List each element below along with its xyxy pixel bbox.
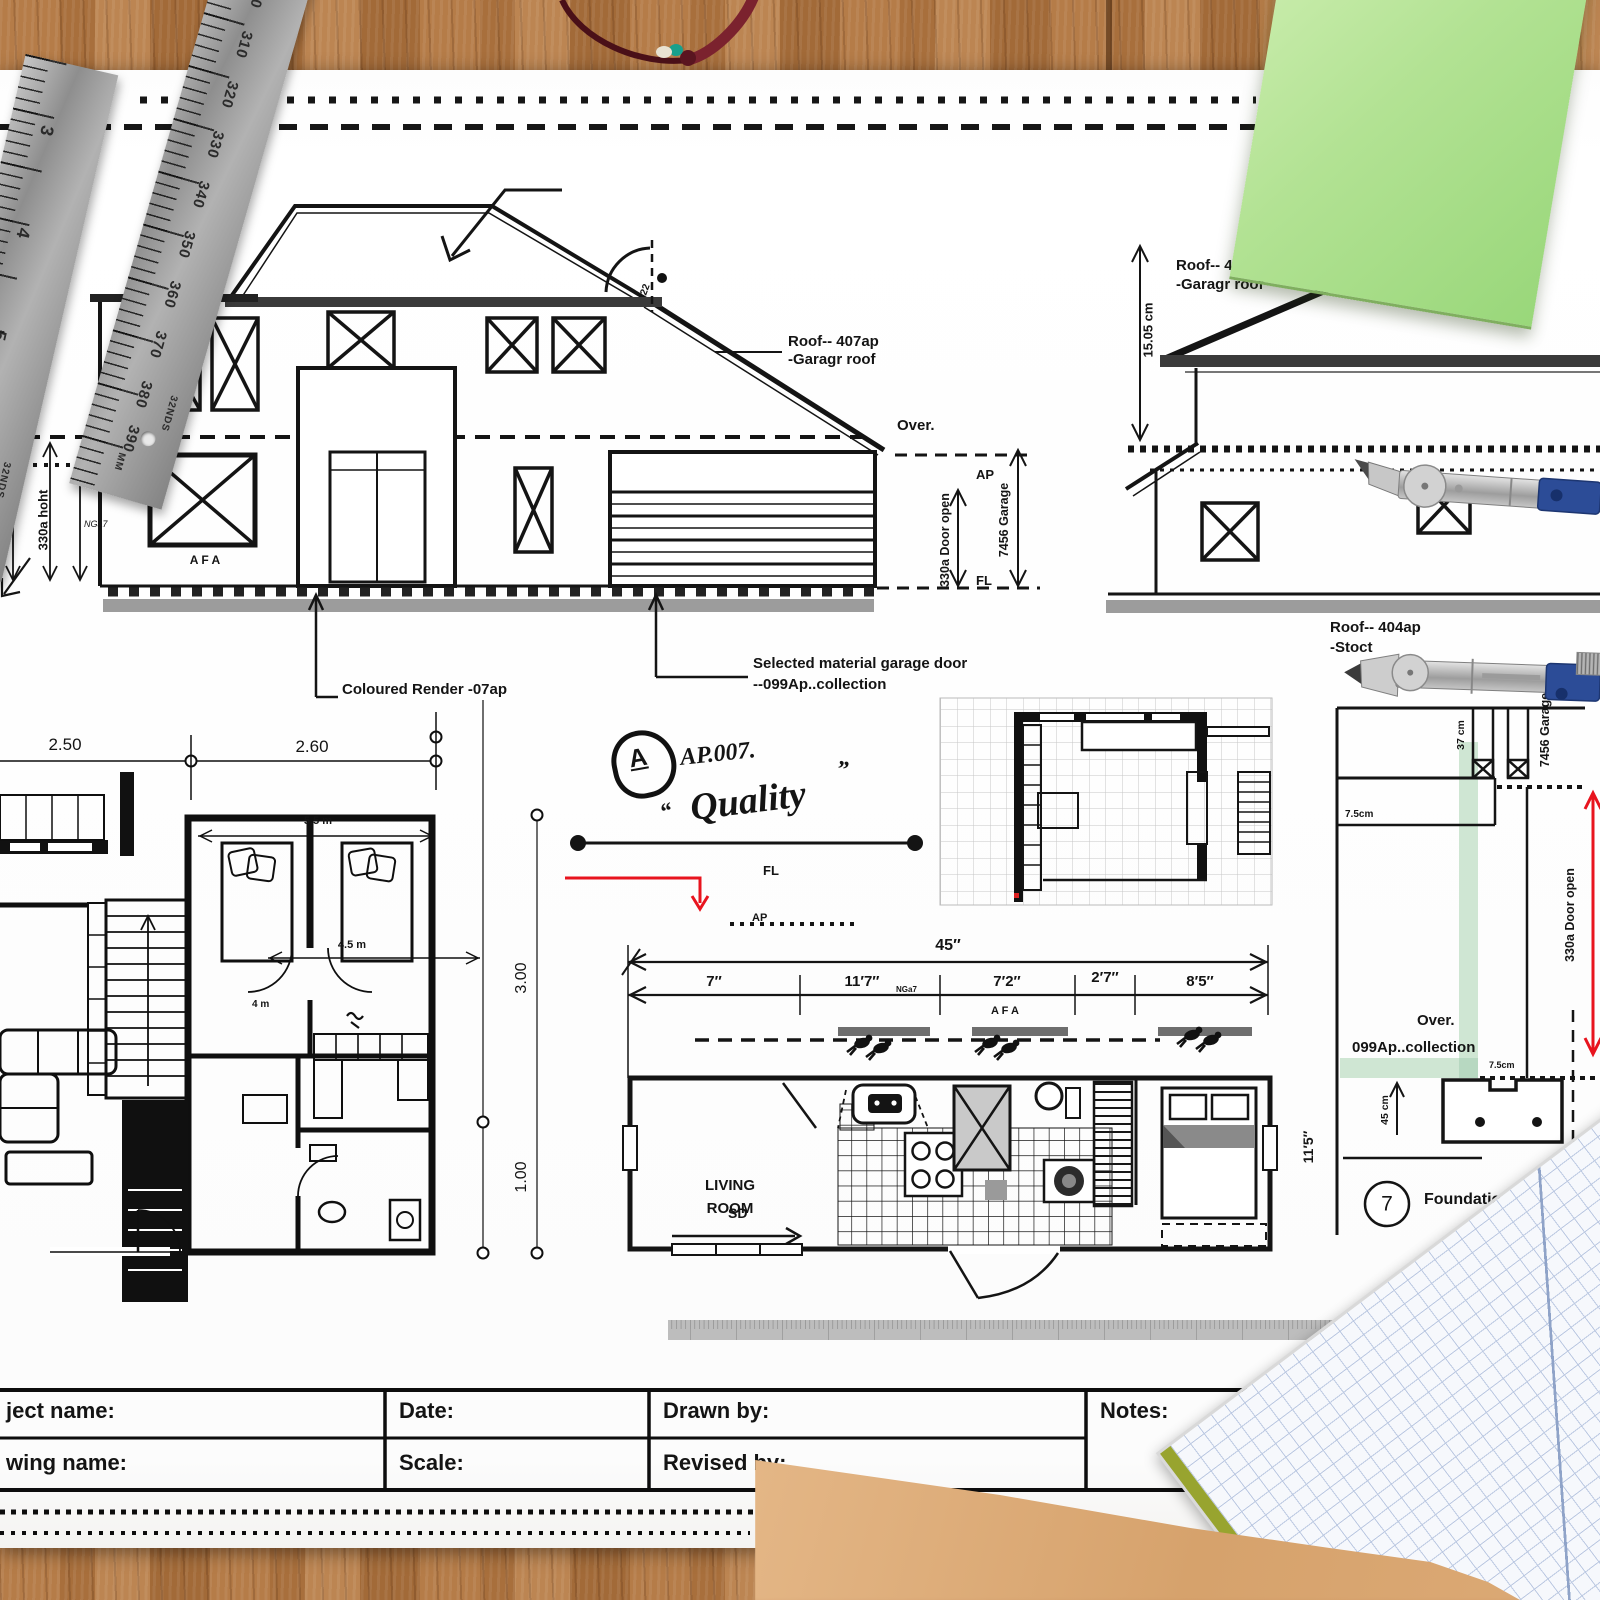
front-ap-label: AP bbox=[976, 468, 994, 481]
green-sticky-note bbox=[1229, 0, 1593, 330]
detail-roof-label-2: -Stoct bbox=[1330, 640, 1373, 655]
render-note: Coloured Render -07ap bbox=[342, 682, 507, 697]
plan-dim-250: 2.50 bbox=[48, 736, 81, 753]
plan-dim-260: 2.60 bbox=[295, 738, 328, 755]
front-afa-label: A F A bbox=[190, 554, 220, 566]
unit-plan-drawing bbox=[622, 945, 1498, 1340]
ruler-scale-label: 32NDS bbox=[0, 461, 12, 500]
ruler-number: 360 bbox=[160, 279, 184, 311]
detail-45cm-dim: 45 cm bbox=[1380, 1095, 1391, 1125]
detail-door-open-dim: 330a Door open bbox=[1564, 868, 1577, 962]
unit-seg-dim-4: 2′7″ bbox=[1091, 970, 1118, 985]
ruler-scale-label: 32NDS bbox=[158, 394, 179, 433]
title-block-date-label: Date: bbox=[399, 1400, 454, 1422]
title-block-drawn-by-label: Drawn by: bbox=[663, 1400, 769, 1422]
ruler-number: 300 bbox=[246, 0, 270, 11]
ruler-number: 4 bbox=[12, 226, 35, 241]
ruler-number: 3 bbox=[35, 123, 58, 138]
front-roof-label-1: Roof-- 407ap bbox=[788, 334, 879, 349]
unit-total-dim: 45″ bbox=[935, 938, 960, 954]
garage-door-note-2: --099Ap..collection bbox=[753, 677, 886, 692]
detail-75cm-upper: 7.5cm bbox=[1345, 810, 1373, 820]
unit-afa-label: A F A bbox=[991, 1006, 1019, 1017]
ruler-number: 340 bbox=[188, 179, 212, 211]
ruler-number: 390 bbox=[118, 423, 142, 455]
apartment-floor-plan bbox=[0, 700, 543, 1302]
sketch-fl-label: FL bbox=[763, 864, 779, 877]
detail-over-label: Over. bbox=[1417, 1013, 1455, 1028]
detail-75cm-lower: 7.5cm bbox=[1489, 1061, 1515, 1070]
unit-sd-label: SD bbox=[728, 1206, 747, 1220]
ruler-number: 380 bbox=[131, 379, 155, 411]
plan-dim-55m: 5.5 m bbox=[304, 816, 332, 827]
detail-37cm-dim: 37 cm bbox=[1456, 720, 1467, 750]
front-fl-label: FL bbox=[976, 574, 992, 587]
detail-collection-label: 099Ap..collection bbox=[1352, 1040, 1475, 1055]
plan-dim-100: 1.00 bbox=[514, 1161, 530, 1192]
desk-scene: Roof-- 407ap -Garagr roof Over. 22 3777 … bbox=[0, 0, 1600, 1600]
plan-dim-45m: 4.5 m bbox=[338, 940, 366, 951]
grid-mini-plan bbox=[940, 698, 1272, 905]
unit-seg-subscript: NGa7 bbox=[896, 986, 917, 994]
front-door-open-dim: 330a Door open bbox=[939, 493, 952, 587]
unit-room-label-1: LIVING bbox=[705, 1178, 755, 1193]
plan-dim-4m: 4 m bbox=[252, 1000, 269, 1010]
front-roof-label-2: -Garagr roof bbox=[788, 352, 876, 367]
ruler-number: 330 bbox=[203, 129, 227, 161]
title-block-project-name-label: ject name: bbox=[6, 1400, 115, 1422]
title-block-drawing-name-label: wing name: bbox=[6, 1452, 127, 1474]
garage-door-note-1: Selected material garage door bbox=[753, 656, 967, 671]
title-block-notes-label: Notes: bbox=[1100, 1400, 1168, 1422]
sketch-ap-label: AP bbox=[752, 913, 767, 924]
unit-seg-dim-2: 11′7″ bbox=[845, 974, 880, 989]
ruler-number: 350 bbox=[174, 229, 198, 261]
ruler-unit-label: MM bbox=[111, 451, 127, 472]
ruler-number: 310 bbox=[231, 29, 255, 61]
sketch-lines bbox=[565, 835, 923, 924]
ruler-number: 5 bbox=[0, 328, 11, 343]
title-block-scale-label: Scale: bbox=[399, 1452, 464, 1474]
side-roof-height-dim: 15.05 cm bbox=[1142, 303, 1155, 358]
detail-callout-number: 7 bbox=[1381, 1194, 1393, 1215]
front-over-label: Over. bbox=[897, 418, 935, 433]
ruler-number: 370 bbox=[145, 329, 169, 361]
unit-height-dim: 11′5″ bbox=[1301, 1131, 1315, 1164]
detail-garage-dim: 7456 Garage bbox=[1539, 693, 1552, 767]
front-garage-dim: 7456 Garage bbox=[998, 483, 1011, 557]
detail-roof-label-1: Roof-- 404ap bbox=[1330, 620, 1421, 635]
unit-seg-dim-3: 7′2″ bbox=[993, 974, 1020, 989]
front-height-dim: 330a hoht bbox=[37, 490, 50, 551]
unit-seg-dim-1: 7″ bbox=[706, 974, 722, 989]
plan-dim-300: 3.00 bbox=[514, 962, 530, 993]
ruler-number: 320 bbox=[217, 79, 241, 111]
unit-seg-dim-5: 8′5″ bbox=[1186, 974, 1213, 989]
front-nga-label: NGa7 bbox=[84, 520, 108, 529]
